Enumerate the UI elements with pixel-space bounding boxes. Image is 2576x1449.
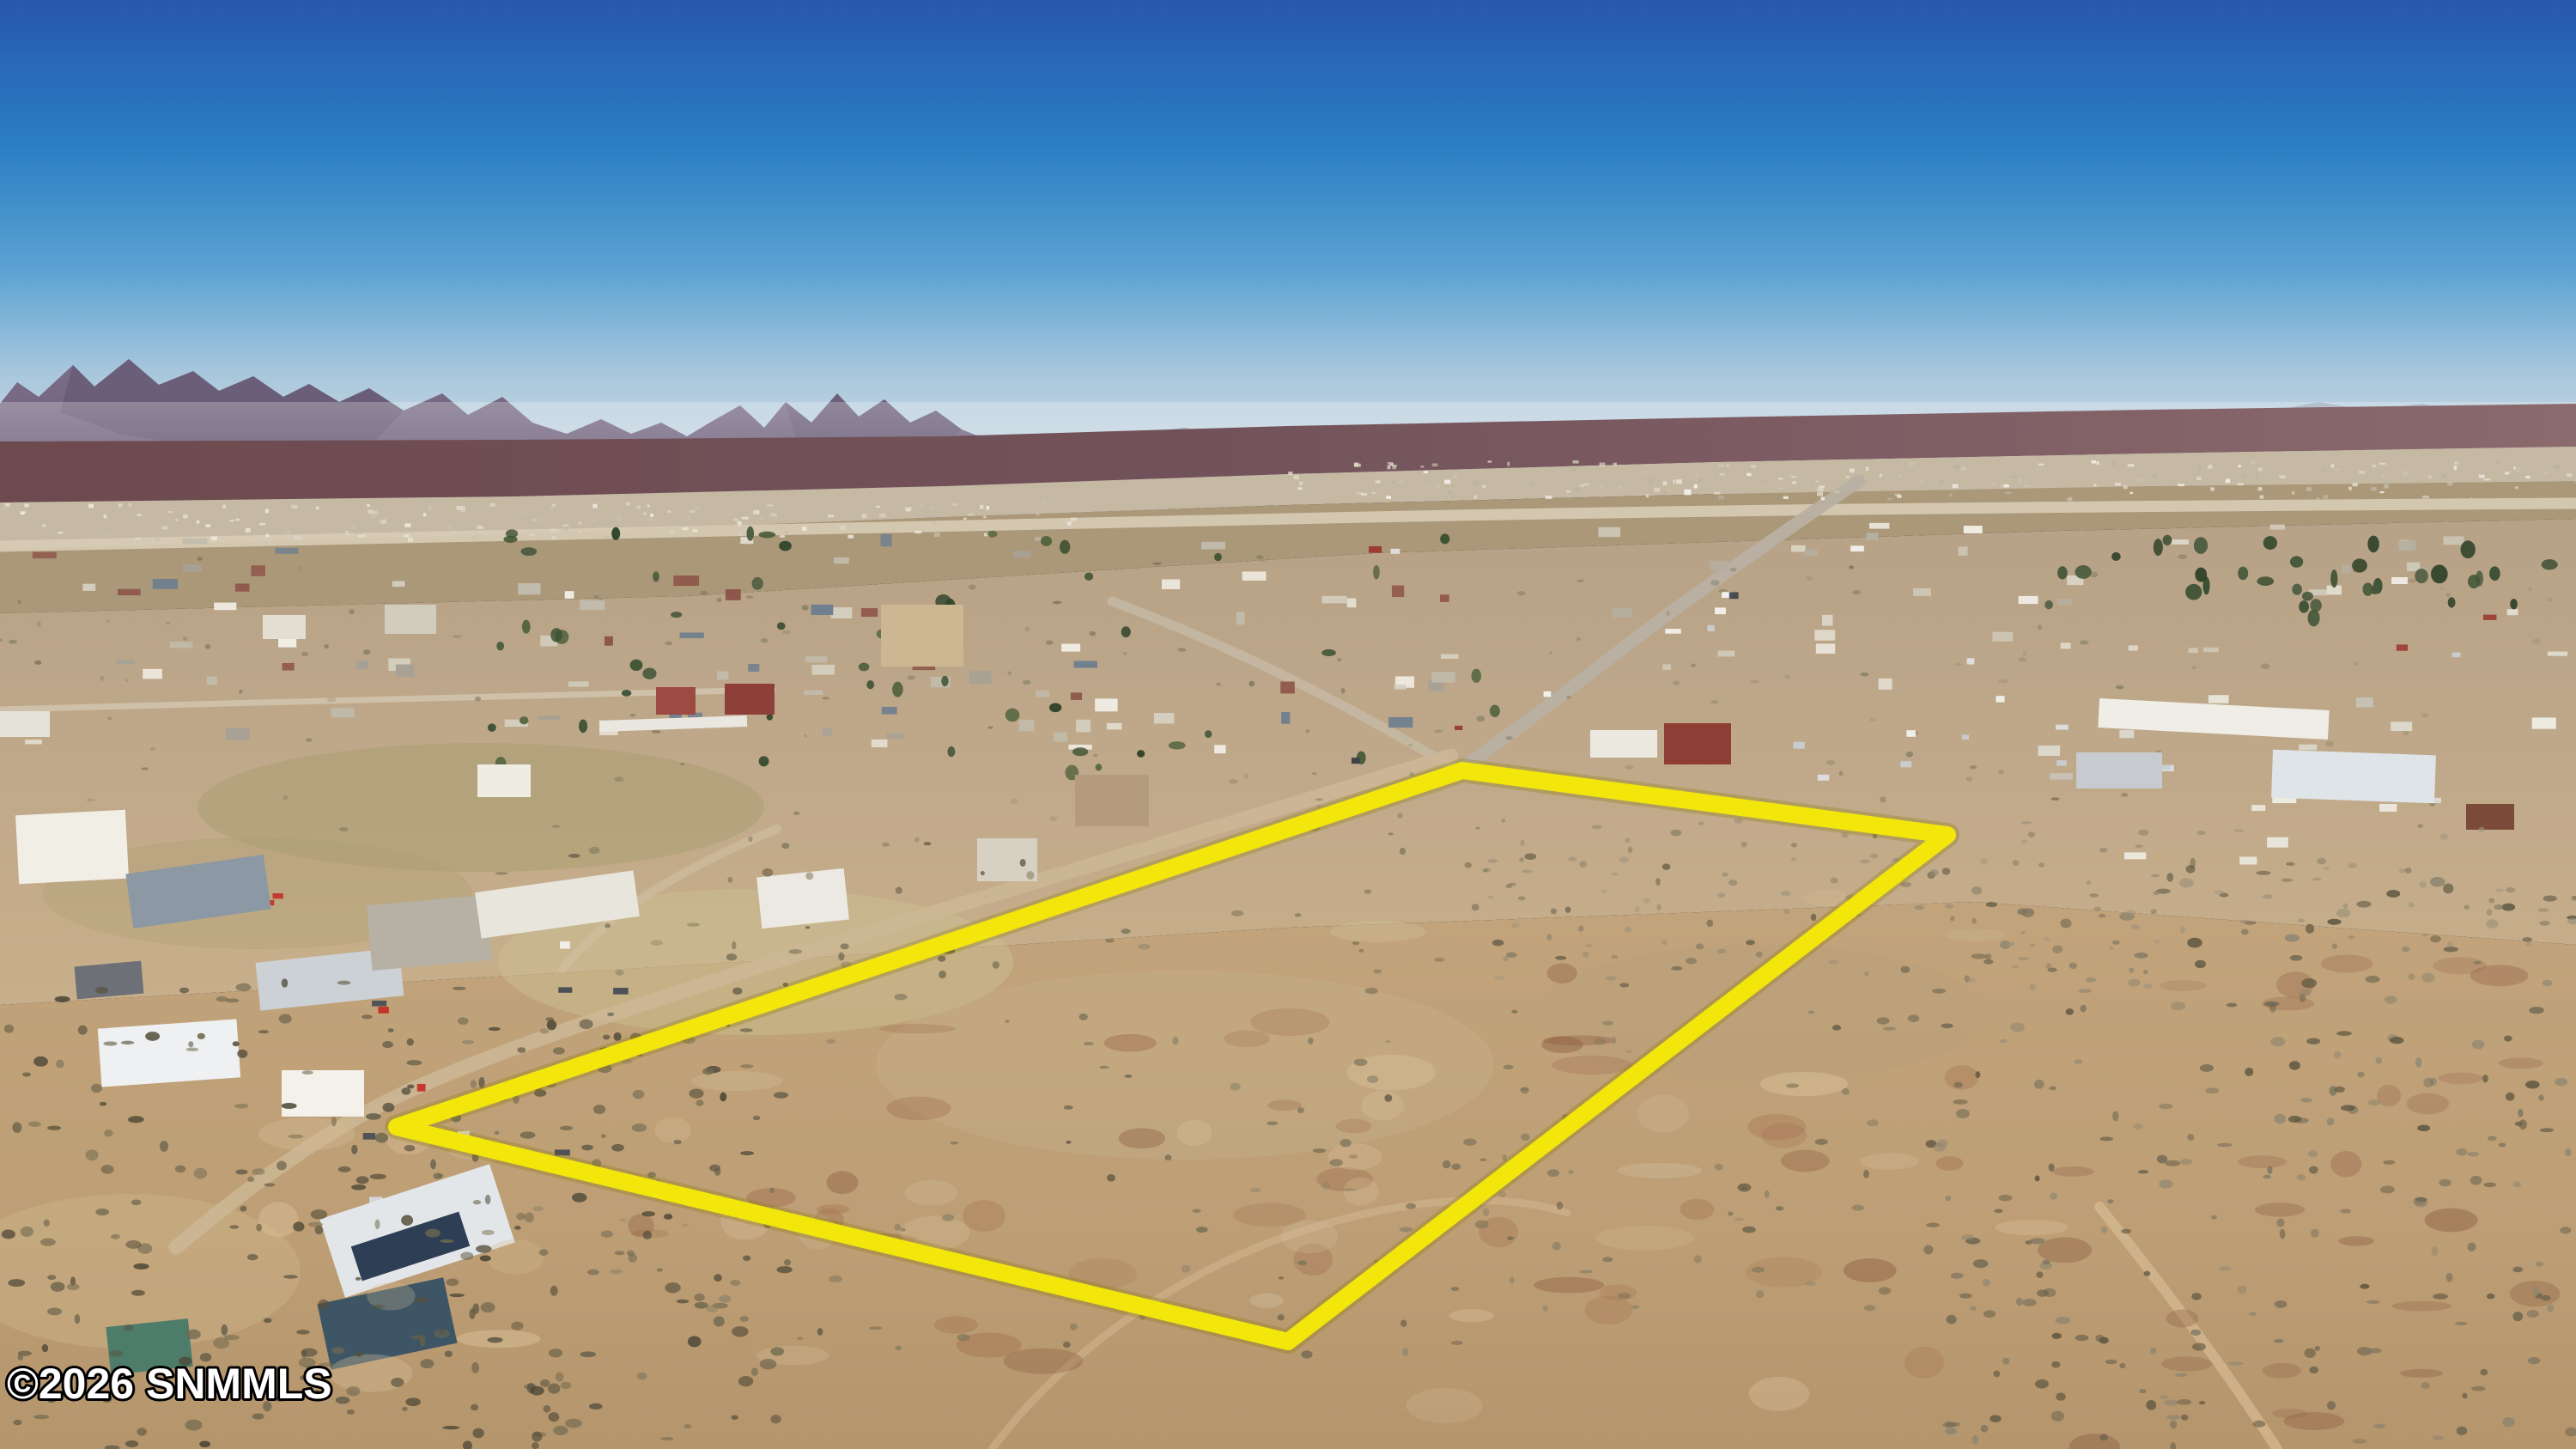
shrub xyxy=(751,1367,758,1376)
shrub xyxy=(1308,1038,1313,1044)
vehicle xyxy=(1900,761,1911,767)
vehicle xyxy=(417,1084,426,1092)
shrub xyxy=(2187,1134,2194,1141)
shrub xyxy=(1877,1017,1890,1025)
distant-building xyxy=(1529,483,1535,486)
shrub xyxy=(188,1041,193,1047)
shrub xyxy=(520,1131,536,1138)
shrub xyxy=(2518,1109,2523,1117)
distant-building xyxy=(155,538,160,541)
dirt-patch xyxy=(2392,1301,2451,1311)
shrub xyxy=(1476,715,1485,721)
shrub xyxy=(404,1145,416,1152)
shrub xyxy=(2486,919,2499,928)
shrub xyxy=(186,1048,199,1051)
shrub xyxy=(2440,588,2444,590)
shrub xyxy=(2529,1007,2543,1014)
shrub xyxy=(34,661,41,665)
shrub xyxy=(1330,1159,1343,1166)
tree xyxy=(2431,564,2448,583)
distant-building xyxy=(780,535,785,538)
building xyxy=(1822,615,1833,626)
distant-building xyxy=(3,506,9,510)
shrub xyxy=(770,1347,784,1355)
tree xyxy=(759,756,769,766)
shrub xyxy=(2343,904,2348,909)
distant-building xyxy=(1644,472,1648,474)
distant-building xyxy=(969,514,975,516)
shrub xyxy=(363,649,370,654)
shrub xyxy=(1625,765,1633,770)
shrub xyxy=(2055,1317,2070,1324)
distant-building xyxy=(1792,481,1796,484)
shrub xyxy=(1178,648,1187,652)
dirt-patch xyxy=(1267,1100,1302,1111)
distant-building xyxy=(1391,481,1395,484)
shrub xyxy=(1999,1195,2013,1202)
shrub xyxy=(593,1105,605,1114)
shrub xyxy=(1099,1066,1109,1069)
shrub xyxy=(660,1437,674,1440)
distant-building xyxy=(2567,473,2572,477)
shrub xyxy=(75,1314,80,1324)
shrub xyxy=(302,1070,313,1075)
building xyxy=(2267,837,2288,848)
shrub xyxy=(2151,874,2160,878)
shrub xyxy=(572,1193,586,1202)
shrub xyxy=(420,1359,434,1368)
shrub xyxy=(719,1295,731,1303)
shrub xyxy=(1852,1205,1864,1211)
shrub xyxy=(1583,952,1589,958)
distant-building xyxy=(1425,487,1429,489)
shrub xyxy=(476,1245,492,1252)
shrub xyxy=(2327,919,2341,925)
shrub xyxy=(1756,1290,1764,1298)
tree xyxy=(2257,576,2274,586)
shrub xyxy=(2267,1166,2272,1174)
shrub xyxy=(349,609,355,614)
shrub xyxy=(805,872,813,880)
tree xyxy=(2154,539,2163,556)
shrub xyxy=(2308,1150,2318,1157)
shrub xyxy=(480,1256,491,1262)
shrub xyxy=(561,1382,571,1389)
shrub xyxy=(1864,971,1868,976)
shrub xyxy=(896,887,902,894)
shrub xyxy=(2527,1310,2539,1318)
shrub xyxy=(308,1222,323,1227)
shrub xyxy=(1552,1242,1561,1251)
shrub xyxy=(2443,884,2453,894)
shrub xyxy=(460,1251,473,1260)
shrub xyxy=(2,1230,15,1239)
distant-building xyxy=(1386,496,1391,499)
shrub xyxy=(282,1103,297,1109)
shrub xyxy=(1741,842,1747,848)
building xyxy=(680,632,704,638)
shrub xyxy=(1182,1265,1191,1273)
shrub xyxy=(1250,1188,1261,1192)
building xyxy=(831,607,853,618)
shrub xyxy=(2462,1393,2467,1399)
shrub xyxy=(2038,862,2044,868)
shrub xyxy=(1666,611,1670,617)
shrub xyxy=(101,1165,114,1173)
tree xyxy=(2185,584,2202,600)
shrub xyxy=(589,847,600,854)
dirt-patch xyxy=(2330,1151,2361,1177)
shrub xyxy=(2086,880,2091,885)
distant-building xyxy=(2495,461,2500,464)
shrub xyxy=(2241,928,2249,935)
shrub xyxy=(1519,857,1523,861)
distant-building xyxy=(759,517,764,520)
shrub xyxy=(2415,1199,2427,1207)
distant-building xyxy=(206,524,210,527)
shrub xyxy=(197,1033,205,1039)
distant-building xyxy=(1448,491,1451,495)
shrub xyxy=(709,1165,720,1172)
shrub xyxy=(2506,887,2515,892)
shrub xyxy=(1831,877,1838,883)
shrub xyxy=(805,926,811,928)
shrub xyxy=(420,1337,425,1347)
shrub xyxy=(2195,960,2206,969)
shrub xyxy=(402,1407,407,1411)
distant-building xyxy=(2178,484,2184,486)
shrub xyxy=(42,1344,48,1352)
shrub xyxy=(433,1172,442,1179)
building xyxy=(1076,720,1091,733)
shrub xyxy=(150,747,155,751)
shrub xyxy=(2487,1294,2495,1299)
shrub xyxy=(1611,873,1618,876)
shrub xyxy=(2430,877,2445,887)
distant-building xyxy=(1694,484,1698,488)
shrub xyxy=(2157,1155,2167,1164)
distant-building xyxy=(2251,460,2255,465)
sand-patch xyxy=(1281,1220,1339,1253)
shrub xyxy=(235,1169,247,1174)
shrub xyxy=(1926,1223,1940,1227)
shrub xyxy=(1305,729,1310,733)
shrub xyxy=(2445,593,2451,597)
distant-building xyxy=(1067,522,1072,526)
vehicle xyxy=(1715,607,1726,614)
vehicle xyxy=(558,987,572,992)
shrub xyxy=(1297,1260,1307,1265)
shrub xyxy=(1578,925,1584,931)
shrub xyxy=(2276,1219,2284,1227)
shrub xyxy=(817,1328,823,1336)
shrub xyxy=(2312,877,2321,880)
dirt-patch xyxy=(2425,1209,2478,1233)
vehicle xyxy=(1967,658,1975,664)
distant-building xyxy=(291,505,297,508)
shrub xyxy=(2074,1059,2082,1064)
distant-building xyxy=(2331,464,2334,467)
building xyxy=(367,895,492,971)
building xyxy=(2391,577,2408,584)
shrub xyxy=(2335,1087,2345,1093)
shrub xyxy=(1070,1324,1078,1330)
shrub xyxy=(2300,995,2306,1002)
shrub xyxy=(1066,1141,1071,1144)
shrub xyxy=(133,1263,149,1269)
building xyxy=(673,575,699,586)
shrub xyxy=(2402,947,2409,953)
distant-building xyxy=(930,505,935,508)
building xyxy=(2271,750,2436,804)
shrub xyxy=(2135,953,2148,959)
distant-building xyxy=(1764,479,1766,484)
distant-building xyxy=(802,527,806,531)
distant-building xyxy=(2011,476,2017,478)
shrub xyxy=(732,1326,748,1337)
building xyxy=(882,707,897,715)
distant-building xyxy=(5,503,10,506)
shrub xyxy=(1256,555,1263,559)
shrub xyxy=(674,1140,682,1144)
distant-building xyxy=(2372,465,2376,467)
distant-building xyxy=(1778,478,1783,479)
building xyxy=(861,608,878,617)
shrub xyxy=(1406,1203,1416,1209)
shrub xyxy=(1975,1071,1980,1078)
building xyxy=(834,557,849,563)
shrub xyxy=(2341,1105,2355,1111)
shrub xyxy=(67,1283,80,1290)
shrub xyxy=(748,837,752,843)
shrub xyxy=(774,1092,788,1099)
shrub xyxy=(296,1330,309,1334)
building xyxy=(2203,648,2219,653)
shrub xyxy=(1729,568,1736,572)
shrub xyxy=(1312,772,1317,775)
shrub xyxy=(445,1350,453,1357)
shrub xyxy=(2233,829,2244,831)
shrub xyxy=(338,1166,351,1172)
building xyxy=(2443,536,2464,545)
shrub xyxy=(1671,966,1682,971)
building xyxy=(881,534,892,546)
shrub xyxy=(199,1440,210,1447)
distant-building xyxy=(1880,474,1882,478)
dirt-patch xyxy=(2407,1093,2449,1115)
shrub xyxy=(1999,679,2008,684)
shrub xyxy=(372,1305,385,1309)
shrub xyxy=(1656,878,1660,886)
shrub xyxy=(1566,696,1571,699)
distant-building xyxy=(368,510,373,514)
building xyxy=(2532,717,2556,728)
shrub xyxy=(1852,590,1861,594)
shrub xyxy=(1508,882,1516,886)
tree xyxy=(1205,730,1212,738)
tree xyxy=(2111,552,2121,561)
shrub xyxy=(440,1239,454,1243)
shrub xyxy=(2171,1002,2185,1010)
shrub xyxy=(717,598,722,602)
shrub xyxy=(2472,1040,2485,1050)
shrub xyxy=(1278,1314,1285,1320)
distant-building xyxy=(2306,487,2312,491)
shrub xyxy=(1784,910,1790,914)
dirt-patch xyxy=(1905,1347,1944,1379)
watermark-text: ©2026 SNMMLS xyxy=(7,1360,332,1408)
building xyxy=(214,603,236,611)
distant-building xyxy=(230,520,234,521)
building xyxy=(33,552,57,559)
shrub xyxy=(1025,626,1030,631)
sand-patch xyxy=(1249,1294,1284,1308)
building xyxy=(183,564,202,572)
shrub xyxy=(318,1300,329,1310)
shrub xyxy=(2306,924,2314,934)
tree xyxy=(2044,600,2053,609)
shrub xyxy=(4,1025,15,1033)
shrub xyxy=(1981,1425,1988,1433)
vehicle xyxy=(2056,725,2069,730)
distant-building xyxy=(1954,465,1959,469)
shrub xyxy=(2419,881,2427,888)
shrub xyxy=(2432,1246,2439,1256)
shrub xyxy=(2539,921,2549,926)
distant-building xyxy=(1600,462,1606,466)
distant-building xyxy=(785,531,789,533)
shrub xyxy=(2095,1335,2104,1342)
distant-building xyxy=(2226,478,2230,483)
shrub xyxy=(2336,909,2350,917)
shrub xyxy=(745,596,753,600)
building xyxy=(2507,609,2518,615)
sand-patch xyxy=(1595,1226,1693,1251)
shrub xyxy=(1483,868,1488,872)
distant-building xyxy=(733,518,738,521)
shrub xyxy=(1079,1014,1088,1020)
distant-building xyxy=(742,517,749,520)
distant-building xyxy=(617,517,621,521)
shrub xyxy=(1504,1065,1514,1070)
shrub xyxy=(1594,1038,1606,1044)
shrub xyxy=(1434,958,1444,962)
shrub xyxy=(47,1126,61,1130)
shrub xyxy=(2046,963,2052,969)
shrub xyxy=(603,1034,611,1039)
distant-building xyxy=(529,534,535,537)
shrub xyxy=(1828,960,1838,964)
shrub xyxy=(1510,1277,1514,1284)
shrub xyxy=(185,1420,203,1431)
shrub xyxy=(841,943,849,949)
tree xyxy=(653,571,659,581)
shrub xyxy=(2066,1008,2074,1015)
shrub xyxy=(901,1228,906,1232)
shrub xyxy=(2196,831,2205,835)
shrub xyxy=(1742,1227,1756,1233)
shrub xyxy=(1710,580,1719,586)
shrub xyxy=(894,994,907,1001)
distant-building xyxy=(2068,497,2073,501)
shrub xyxy=(762,868,774,877)
shrub xyxy=(107,717,112,721)
distant-building xyxy=(2371,487,2376,490)
shrub xyxy=(487,1337,502,1343)
distant-building xyxy=(2238,483,2244,485)
distant-building xyxy=(2543,472,2548,474)
shrub xyxy=(239,690,242,694)
building xyxy=(886,734,904,739)
tree xyxy=(2057,566,2068,579)
distant-building xyxy=(345,531,349,535)
shrub xyxy=(942,1214,954,1221)
sand-patch xyxy=(654,1117,691,1143)
sand-patch xyxy=(1617,1163,1702,1178)
shrub xyxy=(2116,685,2123,690)
distant-building xyxy=(1698,479,1702,483)
tree xyxy=(2489,566,2500,581)
shrub xyxy=(1606,976,1616,980)
shrub xyxy=(2150,1348,2156,1355)
dirt-patch xyxy=(1250,1008,1329,1036)
distant-building xyxy=(2019,478,2021,482)
shrub xyxy=(760,1359,776,1369)
shrub xyxy=(2421,1382,2431,1389)
distant-building xyxy=(667,510,671,513)
distant-building xyxy=(1507,462,1510,466)
building xyxy=(1347,598,1357,607)
tree xyxy=(1060,540,1070,554)
building xyxy=(804,691,823,695)
shrub xyxy=(2008,942,2015,947)
shrub xyxy=(1953,1082,1963,1088)
shrub xyxy=(1451,1341,1463,1345)
shrub xyxy=(495,872,508,874)
distant-building xyxy=(987,506,990,509)
shrub xyxy=(1483,1209,1490,1216)
building xyxy=(2124,852,2146,859)
shrub xyxy=(1385,1040,1390,1043)
shrub xyxy=(1990,1416,2001,1422)
tree xyxy=(941,676,948,686)
shrub xyxy=(2050,1193,2057,1200)
shrub xyxy=(2190,858,2196,868)
building xyxy=(1392,586,1404,598)
vehicle xyxy=(1818,775,1830,781)
shrub xyxy=(264,1318,272,1324)
distant-building xyxy=(2484,478,2491,480)
distant-building xyxy=(1835,490,1840,493)
shrub xyxy=(630,714,636,717)
distant-building xyxy=(670,532,674,534)
tree xyxy=(758,532,775,539)
shrub xyxy=(1618,1293,1631,1299)
distant-building xyxy=(453,531,456,533)
shrub xyxy=(565,1419,582,1428)
dirt-patch xyxy=(1336,1119,1371,1134)
shrub xyxy=(632,1123,647,1132)
distant-building xyxy=(626,502,630,506)
dirt-patch xyxy=(1781,1150,1830,1172)
shrub xyxy=(2144,983,2152,989)
shrub xyxy=(121,1041,134,1044)
distant-building xyxy=(266,534,270,538)
shrub xyxy=(553,1426,568,1435)
vehicle xyxy=(1544,691,1552,697)
shrub xyxy=(2190,1330,2201,1336)
shrub xyxy=(2555,1078,2567,1086)
